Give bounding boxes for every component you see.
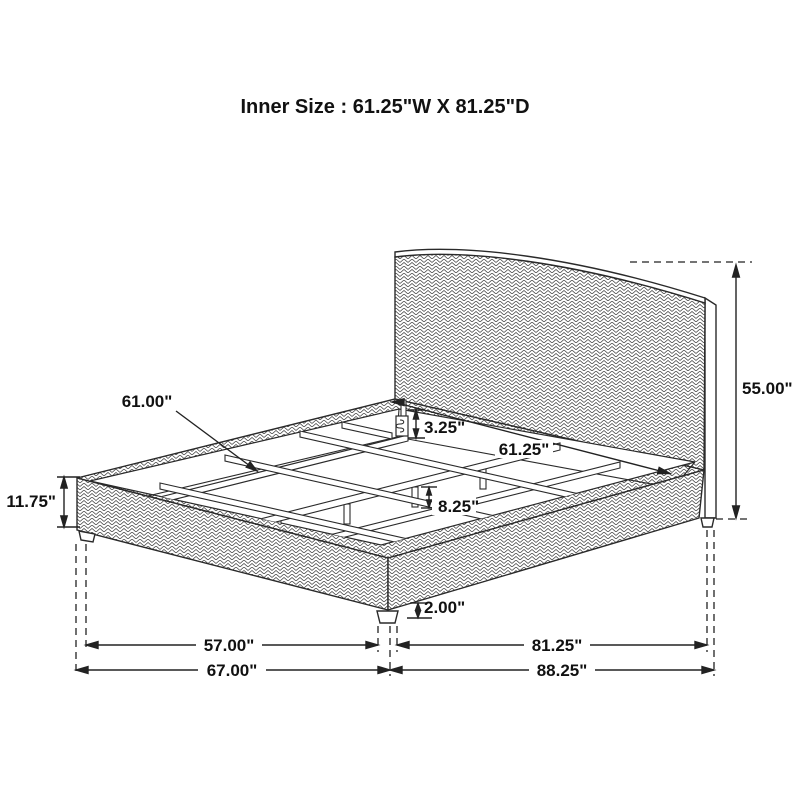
label-headboard-height: 55.00" [742, 379, 793, 398]
label-overall-width: 67.00" [207, 661, 258, 680]
label-leg-span-width: 57.00" [204, 636, 255, 655]
corner-leg-front [377, 611, 398, 623]
label-foot-leg-height: 2.00" [424, 598, 465, 617]
bracket-body [396, 416, 408, 436]
page-title: Inner Size : 61.25"W X 81.25"D [240, 96, 529, 118]
label-overall-depth: 88.25" [537, 661, 588, 680]
dimension-bottom-lines [76, 642, 714, 674]
label-rail-height: 11.75" [6, 492, 56, 511]
headboard-leg [701, 518, 714, 527]
label-center-leg-height: 8.25" [438, 497, 479, 516]
headboard-side-panel [705, 298, 716, 518]
label-rail-lip: 3.25" [424, 418, 465, 437]
bed-dimension-diagram: Inner Size : 61.25"W X 81.25"D [0, 0, 800, 800]
label-slat-length: 61.00" [122, 392, 173, 411]
label-inner-depth: 81.25" [532, 636, 583, 655]
dimension-headboard-height [733, 265, 740, 518]
diagram-canvas: Inner Size : 61.25"W X 81.25"D [0, 0, 800, 800]
label-inner-width: 61.25" [499, 440, 550, 459]
center-support-leg [344, 504, 350, 524]
